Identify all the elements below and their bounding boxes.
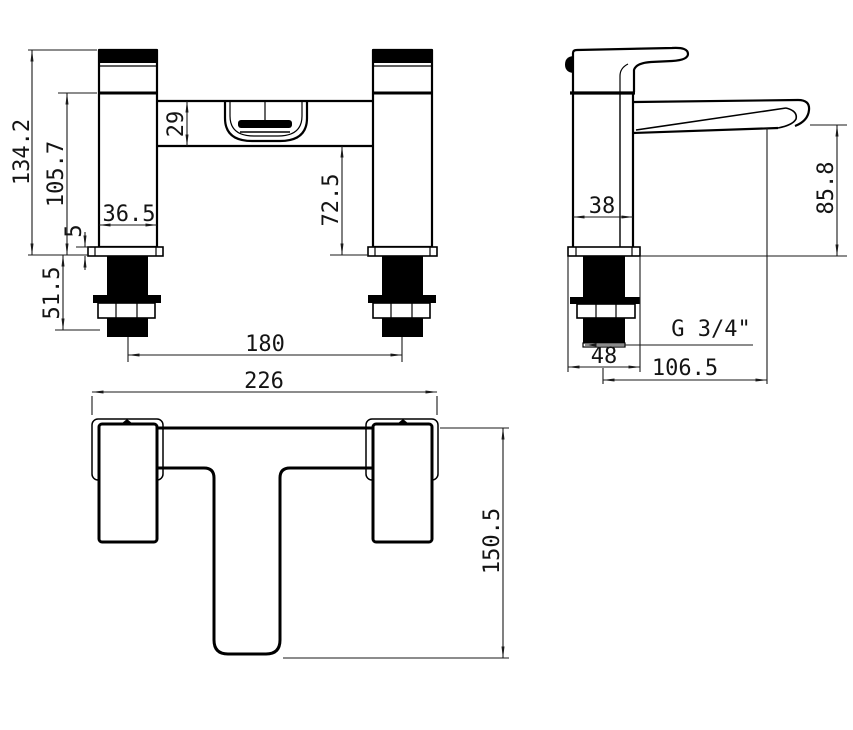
front-right-base-plate	[368, 247, 437, 256]
side-view: 38 85.8 G 3/4" 48 106.5	[565, 48, 847, 384]
front-dimensions: 134.2 105.7 51.5 5 29 72.5 36.5 180	[10, 50, 402, 362]
side-backnut	[577, 304, 635, 318]
plan-view: 226 150.5	[92, 369, 509, 658]
front-right-handle	[373, 50, 432, 247]
dim-label-body-height: 105.7	[44, 141, 69, 207]
drawing-svg: 134.2 105.7 51.5 5 29 72.5 36.5 180	[0, 0, 853, 730]
dim-label-hole-centres: 180	[245, 332, 285, 357]
front-right-backnut	[373, 303, 430, 318]
front-view: 134.2 105.7 51.5 5 29 72.5 36.5 180	[10, 50, 437, 362]
dim-label-tail-length: 51.5	[40, 267, 65, 320]
side-lever-pivot	[565, 56, 573, 73]
plan-spout-stem	[157, 468, 373, 654]
front-left-washer	[93, 295, 161, 303]
dim-label-total-height: 134.2	[10, 119, 35, 185]
front-left-inlet-tail	[93, 256, 161, 337]
dim-label-thread-size: G 3/4"	[671, 317, 750, 342]
technical-drawing-canvas: 134.2 105.7 51.5 5 29 72.5 36.5 180	[0, 0, 853, 730]
front-aerator-slot	[238, 120, 292, 128]
side-inlet-tail	[570, 256, 640, 347]
dim-label-body-width: 36.5	[103, 202, 156, 227]
plan-left-handle	[99, 424, 157, 542]
front-right-inlet-tail	[368, 256, 436, 337]
front-right-handle-cap	[374, 51, 431, 63]
side-lever-handle	[573, 48, 688, 92]
plan-right-handle	[373, 424, 432, 542]
front-spout-outlet	[225, 102, 307, 141]
front-left-backnut	[98, 303, 155, 318]
front-right-washer	[368, 295, 436, 303]
dim-label-overall-width: 226	[244, 369, 284, 394]
side-base-plate	[568, 247, 640, 256]
side-spout	[633, 100, 809, 133]
front-left-base-plate	[88, 247, 163, 256]
side-washer	[570, 297, 640, 304]
dim-label-base-thickness: 5	[62, 224, 87, 237]
dim-label-manifold-height: 29	[164, 111, 189, 138]
dim-label-body-depth: 38	[589, 194, 616, 219]
dim-label-spout-clearance: 72.5	[319, 174, 344, 227]
dim-label-spout-reach: 106.5	[652, 356, 718, 381]
dim-label-overall-depth: 150.5	[480, 508, 505, 574]
front-left-handle-cap	[100, 51, 156, 63]
dim-label-base-depth: 48	[591, 344, 618, 369]
dim-label-spout-height: 85.8	[814, 162, 839, 215]
front-extension-lines	[28, 50, 402, 362]
